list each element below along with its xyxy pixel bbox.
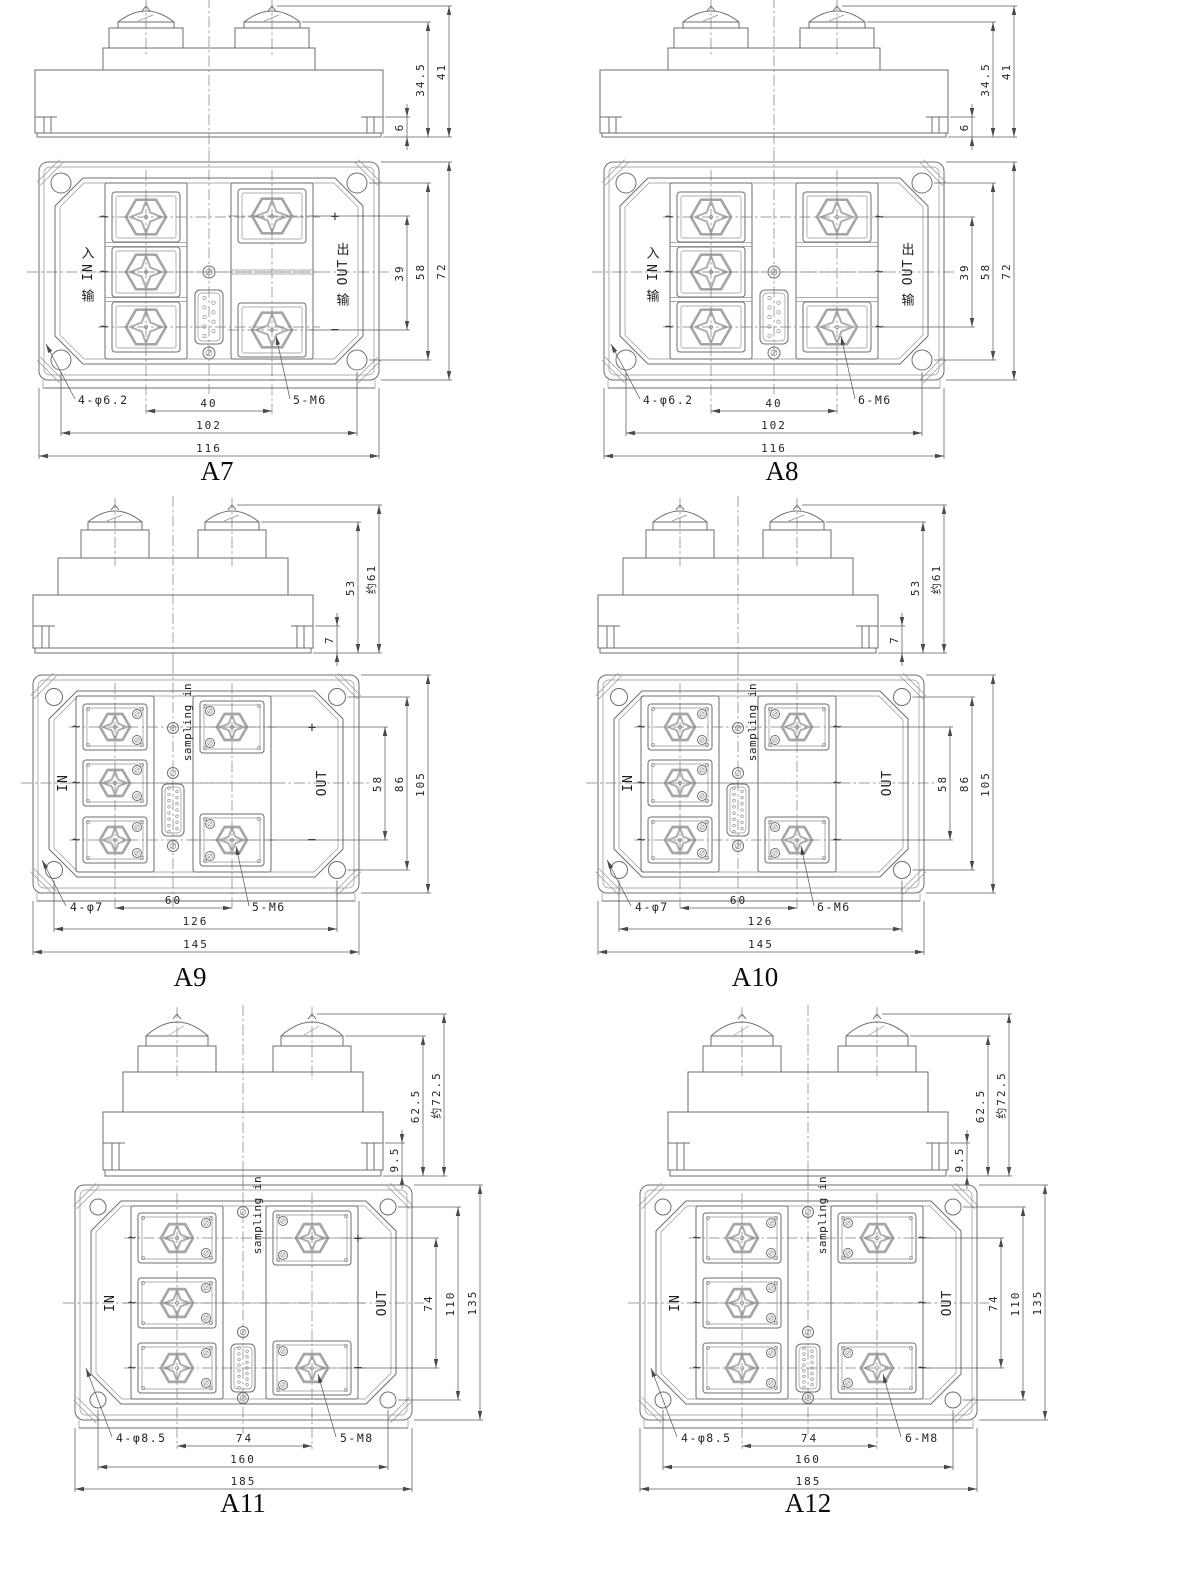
svg-text:41: 41: [435, 63, 448, 80]
svg-text:58: 58: [979, 263, 992, 280]
svg-text:185: 185: [796, 1475, 822, 1488]
drawing-sheet: 634.54139587240102116输IN入输OUT出~~~+−4-φ6.…: [0, 0, 1200, 1596]
svg-text:+: +: [354, 1231, 362, 1247]
svg-text:IN: IN: [103, 1294, 118, 1312]
svg-text:输: 输: [336, 292, 349, 308]
figure-a8-content: 634.54139587240102116输IN入输OUT出~~~~~~4-φ6…: [592, 0, 1017, 459]
svg-text:~: ~: [637, 719, 645, 735]
svg-text:~: ~: [833, 832, 841, 848]
a9-side-view: [33, 496, 313, 665]
svg-text:39: 39: [393, 264, 406, 281]
svg-text:4-φ7: 4-φ7: [635, 900, 669, 914]
svg-text:9.5: 9.5: [953, 1147, 966, 1173]
svg-text:~: ~: [637, 832, 645, 848]
svg-text:74: 74: [987, 1294, 1000, 1311]
svg-text:34.5: 34.5: [979, 62, 992, 97]
svg-text:~: ~: [128, 1360, 136, 1376]
svg-text:6-M6: 6-M6: [858, 393, 892, 407]
svg-text:116: 116: [196, 442, 222, 455]
figure-a7-drawing: 634.54139587240102116输IN入输OUT出~~~+−4-φ6.…: [0, 0, 600, 480]
svg-text:~: ~: [100, 264, 108, 280]
svg-text:~: ~: [875, 264, 883, 280]
svg-text:约72.5: 约72.5: [995, 1071, 1008, 1119]
svg-text:53: 53: [344, 579, 357, 596]
svg-text:5-M6: 5-M6: [252, 900, 286, 914]
svg-text:74: 74: [422, 1294, 435, 1311]
svg-text:~: ~: [128, 1295, 136, 1311]
a7-leader-notes: 4-φ6.25-M6: [46, 336, 327, 407]
svg-text:135: 135: [1031, 1290, 1044, 1316]
svg-text:9.5: 9.5: [388, 1147, 401, 1173]
svg-text:105: 105: [979, 771, 992, 797]
a8-right-dimensions: 395872: [875, 162, 1017, 380]
svg-text:输: 输: [646, 289, 659, 305]
a10-leader-notes: 4-φ76-M6: [607, 846, 851, 914]
svg-text:6-M6: 6-M6: [817, 900, 851, 914]
a12-side-view: [668, 1005, 948, 1188]
svg-text:102: 102: [196, 419, 222, 432]
svg-text:~: ~: [875, 319, 883, 335]
figure-a7-content: 634.54139587240102116输IN入输OUT出~~~+−4-φ6.…: [27, 0, 452, 459]
svg-text:53: 53: [909, 579, 922, 596]
svg-text:IN: IN: [621, 774, 636, 792]
svg-text:34.5: 34.5: [414, 62, 427, 97]
figure-a10: 753约61588610560126145INOUTsampling in~~~…: [565, 480, 1165, 1000]
svg-text:~: ~: [128, 1230, 136, 1246]
svg-text:~: ~: [637, 775, 645, 791]
svg-text:60: 60: [165, 894, 182, 907]
svg-text:约61: 约61: [930, 564, 943, 594]
figure-a9-drawing: 753约61588610560126145INOUTsampling in~~~…: [0, 480, 600, 1000]
svg-text:110: 110: [1009, 1291, 1022, 1317]
svg-text:OUT: OUT: [880, 770, 895, 796]
figure-a7: 634.54139587240102116输IN入输OUT出~~~+−4-φ6.…: [0, 0, 600, 480]
svg-text:sampling in: sampling in: [251, 1176, 264, 1254]
figure-a12: 9.562.5约72.57411013574160185INOUTsamplin…: [565, 1000, 1165, 1596]
a8-leader-notes: 4-φ6.26-M6: [611, 336, 892, 407]
a7-labels: 输IN入输OUT出~~~+−: [81, 209, 351, 338]
svg-text:41: 41: [1000, 63, 1013, 80]
svg-text:72: 72: [1000, 262, 1013, 279]
svg-text:入: 入: [81, 247, 94, 262]
svg-text:+: +: [331, 209, 339, 225]
a12-bottom-dimensions: 74160185: [640, 1410, 977, 1492]
svg-text:−: −: [354, 1360, 362, 1376]
svg-text:40: 40: [200, 397, 217, 410]
svg-text:~: ~: [665, 209, 673, 225]
svg-text:~: ~: [875, 209, 883, 225]
figure-a8-title: A8: [737, 456, 827, 487]
svg-text:OUT: OUT: [901, 259, 916, 285]
svg-text:7: 7: [323, 635, 336, 644]
svg-text:~: ~: [693, 1230, 701, 1246]
svg-text:116: 116: [761, 442, 787, 455]
svg-text:60: 60: [730, 894, 747, 907]
svg-text:58: 58: [936, 775, 949, 792]
figure-a8-drawing: 634.54139587240102116输IN入输OUT出~~~~~~4-φ6…: [565, 0, 1165, 480]
svg-text:4-φ6.2: 4-φ6.2: [643, 393, 694, 407]
figure-a8: 634.54139587240102116输IN入输OUT出~~~~~~4-φ6…: [565, 0, 1165, 480]
figure-a11: 9.562.5约72.57411013574160185INOUTsamplin…: [0, 1000, 600, 1596]
figure-a11-drawing: 9.562.5约72.57411013574160185INOUTsamplin…: [0, 1000, 600, 1596]
svg-text:~: ~: [72, 775, 80, 791]
svg-text:4-φ6.2: 4-φ6.2: [78, 393, 129, 407]
svg-text:135: 135: [466, 1290, 479, 1316]
svg-text:110: 110: [444, 1291, 457, 1317]
svg-text:OUT: OUT: [336, 259, 351, 285]
svg-text:~: ~: [693, 1295, 701, 1311]
svg-text:145: 145: [183, 938, 209, 951]
a10-bottom-dimensions: 60126145: [598, 881, 924, 956]
figure-a7-title: A7: [172, 456, 262, 487]
svg-text:74: 74: [236, 1432, 253, 1445]
svg-text:+: +: [308, 720, 316, 736]
figure-a11-title: A11: [198, 1488, 288, 1519]
a10-right-dimensions: 5886105: [833, 675, 996, 893]
svg-text:−: −: [308, 832, 316, 848]
svg-text:86: 86: [393, 775, 406, 792]
figure-a12-drawing: 9.562.5约72.57411013574160185INOUTsamplin…: [565, 1000, 1165, 1596]
figure-a9-title: A9: [145, 962, 235, 993]
svg-text:输: 输: [901, 292, 914, 308]
svg-text:62.5: 62.5: [974, 1089, 987, 1124]
svg-text:~: ~: [918, 1360, 926, 1376]
svg-text:102: 102: [761, 419, 787, 432]
a11-bottom-dimensions: 74160185: [75, 1410, 412, 1492]
figure-a11-content: 9.562.5约72.57411013574160185INOUTsamplin…: [63, 1005, 483, 1492]
svg-text:105: 105: [414, 771, 427, 797]
svg-text:4-φ7: 4-φ7: [70, 900, 104, 914]
svg-text:IN: IN: [646, 263, 661, 281]
svg-text:~: ~: [72, 719, 80, 735]
svg-text:OUT: OUT: [940, 1290, 955, 1316]
a11-leader-notes: 4-φ8.55-M8: [86, 1368, 374, 1445]
figure-a12-content: 9.562.5约72.57411013574160185INOUTsamplin…: [628, 1005, 1048, 1492]
svg-text:出: 出: [901, 243, 914, 258]
svg-text:sampling in: sampling in: [181, 683, 194, 761]
figure-a9-content: 753约61588610560126145INOUTsampling in~~~…: [21, 496, 431, 955]
svg-text:OUT: OUT: [315, 770, 330, 796]
figure-a10-title: A10: [710, 962, 800, 993]
svg-text:4-φ8.5: 4-φ8.5: [116, 1431, 167, 1445]
svg-text:约72.5: 约72.5: [430, 1071, 443, 1119]
svg-text:~: ~: [665, 319, 673, 335]
svg-text:6-M8: 6-M8: [905, 1431, 939, 1445]
svg-text:6: 6: [393, 123, 406, 132]
svg-text:~: ~: [918, 1230, 926, 1246]
svg-text:160: 160: [230, 1453, 256, 1466]
svg-text:4-φ8.5: 4-φ8.5: [681, 1431, 732, 1445]
svg-text:62.5: 62.5: [409, 1089, 422, 1124]
a10-side-view: [598, 496, 878, 665]
svg-text:58: 58: [371, 775, 384, 792]
svg-text:126: 126: [748, 915, 774, 928]
svg-text:74: 74: [801, 1432, 818, 1445]
svg-text:185: 185: [231, 1475, 257, 1488]
svg-text:160: 160: [795, 1453, 821, 1466]
a9-right-dimensions: 5886105: [268, 675, 431, 893]
svg-text:~: ~: [100, 319, 108, 335]
svg-text:7: 7: [888, 635, 901, 644]
svg-text:入: 入: [646, 247, 659, 262]
svg-text:sampling in: sampling in: [746, 683, 759, 761]
svg-text:5-M8: 5-M8: [340, 1431, 374, 1445]
svg-text:−: −: [331, 322, 339, 338]
svg-text:126: 126: [183, 915, 209, 928]
figure-a9: 753约61588610560126145INOUTsampling in~~~…: [0, 480, 600, 1000]
svg-text:IN: IN: [81, 263, 96, 281]
svg-text:~: ~: [833, 775, 841, 791]
svg-text:40: 40: [765, 397, 782, 410]
svg-text:86: 86: [958, 775, 971, 792]
svg-text:72: 72: [435, 262, 448, 279]
svg-text:5-M6: 5-M6: [293, 393, 327, 407]
a12-side-dimensions: 9.562.5约72.5: [882, 1014, 1012, 1189]
svg-text:~: ~: [100, 209, 108, 225]
svg-text:IN: IN: [668, 1294, 683, 1312]
svg-text:~: ~: [833, 719, 841, 735]
svg-text:~: ~: [693, 1360, 701, 1376]
svg-text:IN: IN: [56, 774, 71, 792]
svg-text:约61: 约61: [365, 564, 378, 594]
figure-a10-drawing: 753约61588610560126145INOUTsampling in~~~…: [565, 480, 1165, 1000]
svg-text:39: 39: [958, 263, 971, 280]
a7-right-dimensions: 395872: [310, 162, 452, 380]
svg-text:~: ~: [665, 264, 673, 280]
a11-side-dimensions: 9.562.5约72.5: [317, 1014, 447, 1189]
svg-text:输: 输: [81, 289, 94, 305]
svg-text:~: ~: [918, 1295, 926, 1311]
a11-side-view: [103, 1005, 383, 1188]
svg-text:58: 58: [414, 263, 427, 280]
svg-text:sampling in: sampling in: [816, 1176, 829, 1254]
a9-bottom-dimensions: 60126145: [33, 881, 359, 956]
svg-text:OUT: OUT: [375, 1290, 390, 1316]
svg-text:145: 145: [748, 938, 774, 951]
a12-leader-notes: 4-φ8.56-M8: [651, 1368, 939, 1445]
svg-text:出: 出: [336, 243, 349, 258]
svg-text:~: ~: [72, 832, 80, 848]
svg-text:6: 6: [958, 123, 971, 132]
figure-a10-content: 753约61588610560126145INOUTsampling in~~~…: [586, 496, 996, 955]
a9-leader-notes: 4-φ75-M6: [42, 846, 286, 914]
figure-a12-title: A12: [763, 1488, 853, 1519]
